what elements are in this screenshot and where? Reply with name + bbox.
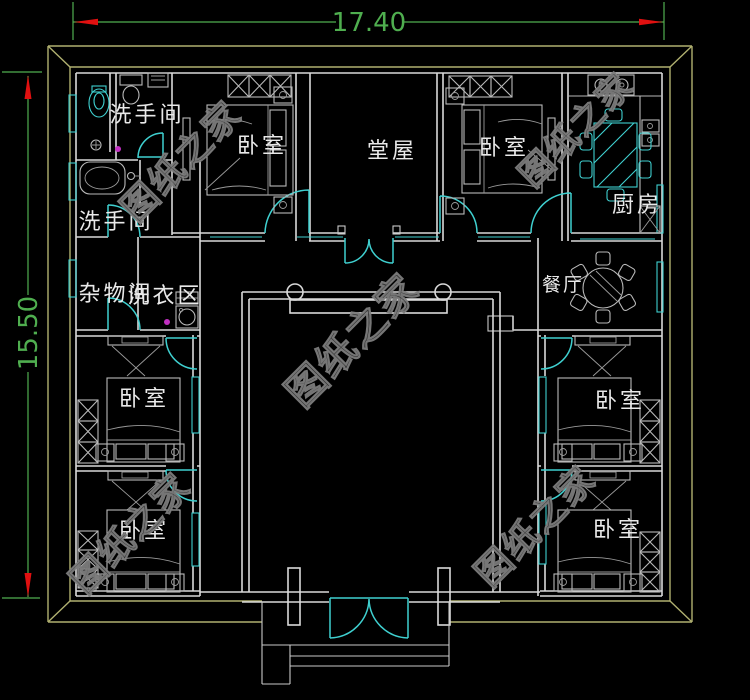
nightstand-icon	[446, 198, 464, 214]
chair-icon	[596, 252, 610, 265]
wardrobe-icon	[78, 400, 98, 463]
faucet-icon	[128, 173, 135, 180]
entry-steps	[262, 602, 449, 684]
floorplan-drawing: 17.40 15.50	[0, 0, 750, 700]
sink-icon	[642, 120, 659, 132]
dim-arrow-left-icon	[74, 19, 98, 25]
label-bedroom-3: 卧室	[119, 387, 169, 412]
nightstand-icon	[96, 444, 114, 461]
door-main-entrance	[330, 598, 408, 638]
label-bedroom-5: 卧室	[595, 389, 645, 414]
label-laundry: 洗衣区	[127, 284, 202, 309]
window-icon	[539, 377, 546, 433]
watermarks: 图纸之家 图纸之家 图纸之家 图纸之家 图纸之家	[63, 65, 642, 602]
wardrobe-icon	[449, 76, 512, 97]
door-kitchen	[531, 193, 571, 233]
dimension-left: 15.50	[2, 72, 44, 598]
watermark-text: 图纸之家	[468, 459, 604, 595]
label-kitchen: 厨房	[612, 193, 662, 218]
dimension-width-label: 17.40	[332, 8, 406, 38]
nightstand-icon	[624, 444, 642, 461]
entry-pier-right	[438, 568, 450, 625]
window-icon	[192, 513, 199, 566]
door-bedroom-top-left	[265, 190, 309, 233]
entry-pier-left	[288, 568, 300, 625]
label-hall: 堂屋	[367, 139, 417, 164]
dim-arrow-right-icon	[639, 19, 663, 25]
marker-dot	[115, 146, 121, 152]
label-dining: 餐厅	[542, 274, 584, 296]
floorplan-canvas: 17.40 15.50	[0, 0, 750, 700]
nightstand-icon	[624, 574, 642, 591]
label-bedroom-6: 卧室	[593, 518, 643, 543]
label-bedroom-1: 卧室	[237, 134, 287, 159]
chair-icon	[596, 310, 610, 323]
dimension-height-label: 15.50	[14, 296, 44, 370]
watermark-text: 图纸之家	[277, 265, 428, 416]
door-hall-double	[345, 238, 393, 263]
wardrobe-icon	[228, 75, 291, 97]
label-washroom-top: 洗手间	[109, 103, 184, 128]
dim-arrow-up-icon	[25, 75, 32, 99]
corridor-window-band	[210, 237, 655, 239]
dim-arrow-down-icon	[25, 573, 32, 597]
cistern-icon	[120, 75, 142, 85]
window-icon	[192, 377, 199, 433]
watermark-text: 图纸之家	[511, 65, 641, 195]
dimension-top: 17.40	[73, 2, 664, 40]
marker-dot	[164, 319, 170, 325]
